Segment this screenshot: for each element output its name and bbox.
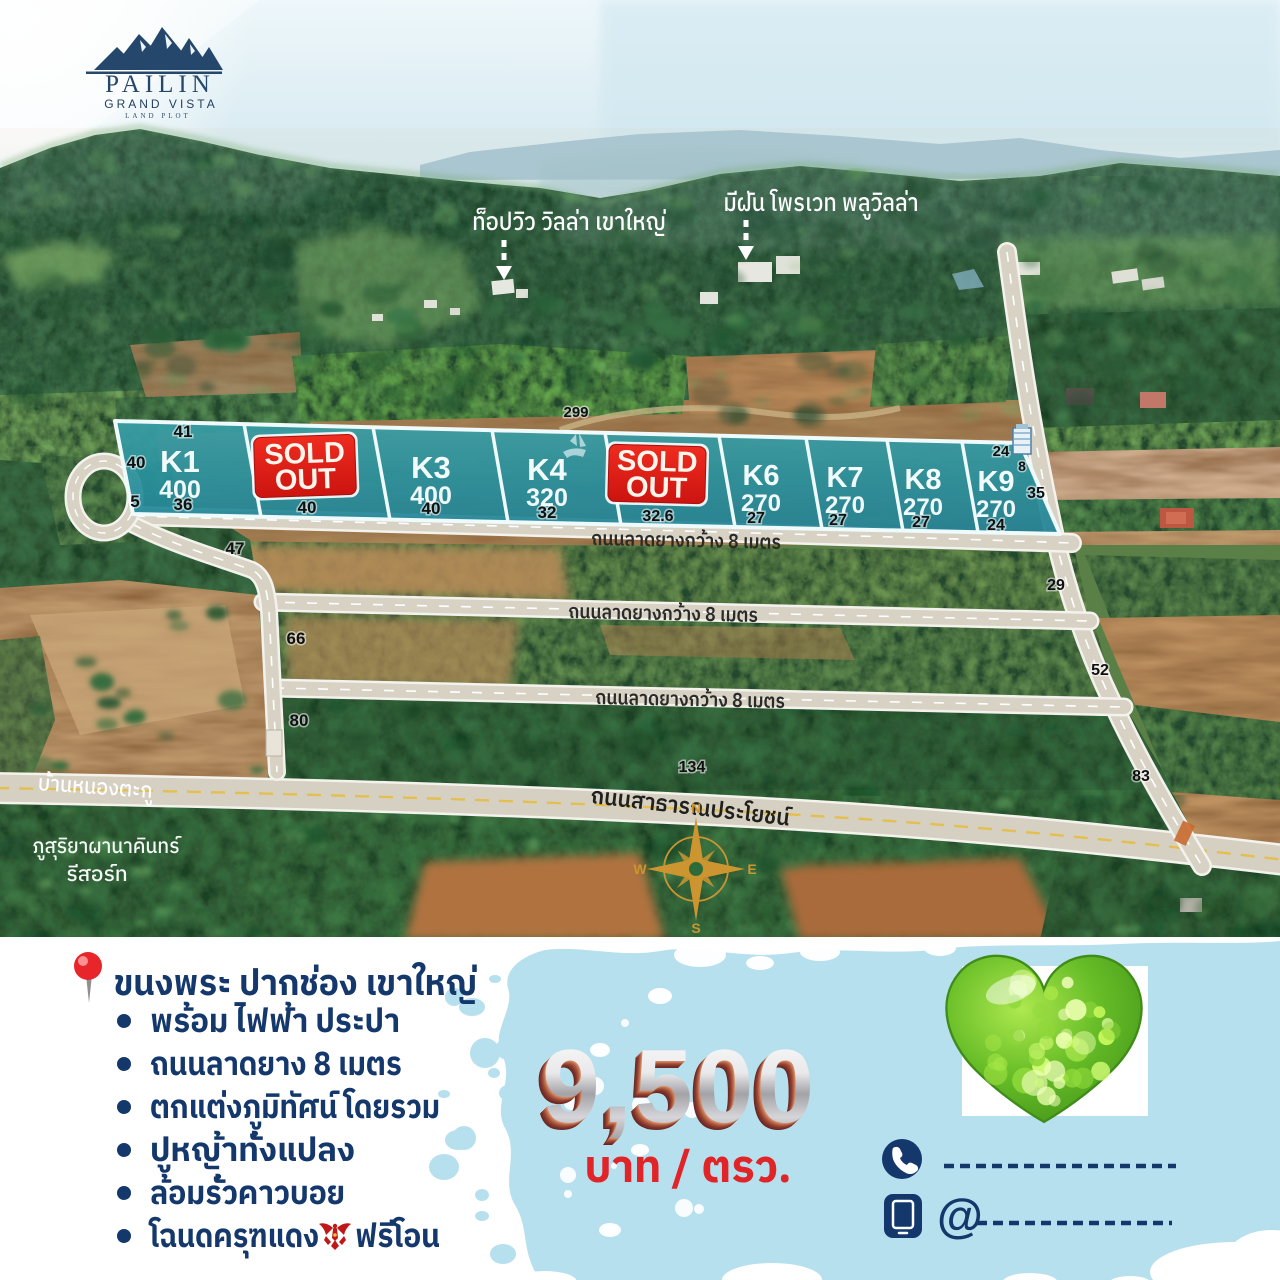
svg-text:LAND PLOT: LAND PLOT [125, 112, 191, 120]
svg-text:GRAND VISTA: GRAND VISTA [104, 97, 217, 111]
svg-text:K8: K8 [904, 464, 941, 496]
svg-text:W: W [633, 861, 647, 877]
svg-text:134: 134 [679, 759, 706, 776]
svg-text:PAILIN: PAILIN [105, 71, 215, 98]
svg-text:K6: K6 [742, 460, 779, 492]
svg-text:OUT: OUT [274, 463, 337, 497]
svg-text:40: 40 [422, 499, 441, 518]
svg-text:27: 27 [829, 512, 847, 529]
svg-text:40: 40 [127, 453, 146, 472]
svg-text:40: 40 [298, 498, 317, 517]
svg-text:32: 32 [538, 503, 557, 522]
svg-text:32.6: 32.6 [642, 508, 673, 525]
svg-text:5: 5 [130, 492, 139, 511]
svg-text:K9: K9 [977, 466, 1014, 498]
svg-text:41: 41 [174, 422, 193, 441]
svg-text:35: 35 [1027, 485, 1045, 502]
svg-text:S: S [691, 920, 700, 936]
svg-text:80: 80 [290, 711, 309, 730]
svg-text:47: 47 [226, 539, 245, 558]
svg-text:K1: K1 [160, 444, 200, 479]
svg-text:8: 8 [1018, 458, 1026, 474]
svg-text:24: 24 [987, 517, 1005, 534]
svg-text:K7: K7 [826, 462, 863, 494]
svg-text:36: 36 [174, 495, 193, 514]
svg-text:66: 66 [287, 629, 306, 648]
svg-text:9,500: 9,500 [542, 1029, 817, 1145]
svg-text:N: N [691, 800, 701, 816]
svg-text:299: 299 [563, 404, 588, 421]
svg-text:K4: K4 [527, 452, 567, 487]
svg-text:K3: K3 [411, 450, 451, 485]
svg-text:@: @ [937, 1189, 983, 1242]
svg-text:27: 27 [912, 514, 930, 531]
svg-text:52: 52 [1091, 662, 1109, 679]
svg-text:29: 29 [1047, 577, 1065, 594]
svg-text:83: 83 [1132, 768, 1150, 785]
svg-text:OUT: OUT [626, 471, 688, 505]
svg-text:27: 27 [747, 510, 765, 527]
svg-text:E: E [747, 861, 756, 877]
svg-text:24: 24 [993, 443, 1010, 460]
